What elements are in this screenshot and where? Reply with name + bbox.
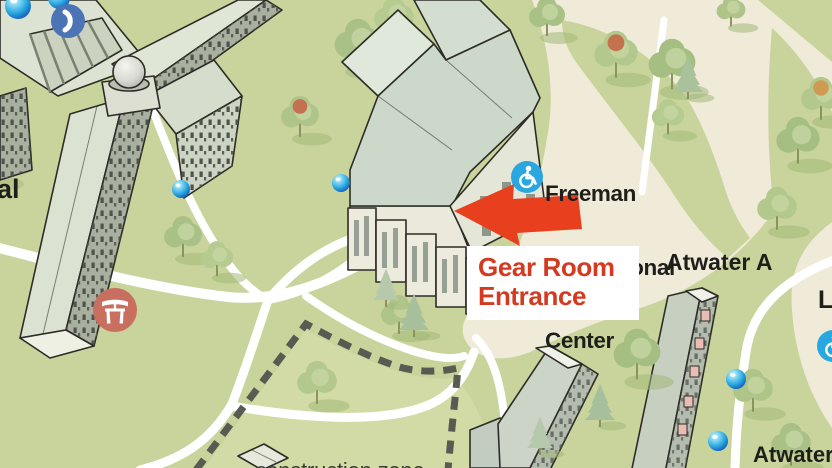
label-partial-left: al xyxy=(0,174,20,205)
label-atwater-a[interactable]: Atwater A xyxy=(666,249,773,276)
campus-map: Freeman International Center Gear Room E… xyxy=(0,0,832,468)
label-atwater-residence-halls[interactable]: Atwater Residence Halls xyxy=(753,397,832,468)
map-marker-sphere[interactable] xyxy=(726,369,746,389)
torii-gate-icon[interactable] xyxy=(93,288,137,332)
map-marker-sphere[interactable] xyxy=(708,431,728,451)
gear-room-entrance-label[interactable]: Gear Room Entrance xyxy=(467,246,639,320)
wheelchair-icon[interactable] xyxy=(511,161,543,193)
map-marker-sphere[interactable] xyxy=(172,180,190,198)
map-marker-sphere[interactable] xyxy=(332,174,350,192)
map-canvas xyxy=(0,0,832,468)
label-partial-right: L xyxy=(818,286,832,315)
label-construction-zone: construction zone (no public entrance) xyxy=(218,403,462,468)
emergency-phone-icon[interactable] xyxy=(51,4,85,38)
